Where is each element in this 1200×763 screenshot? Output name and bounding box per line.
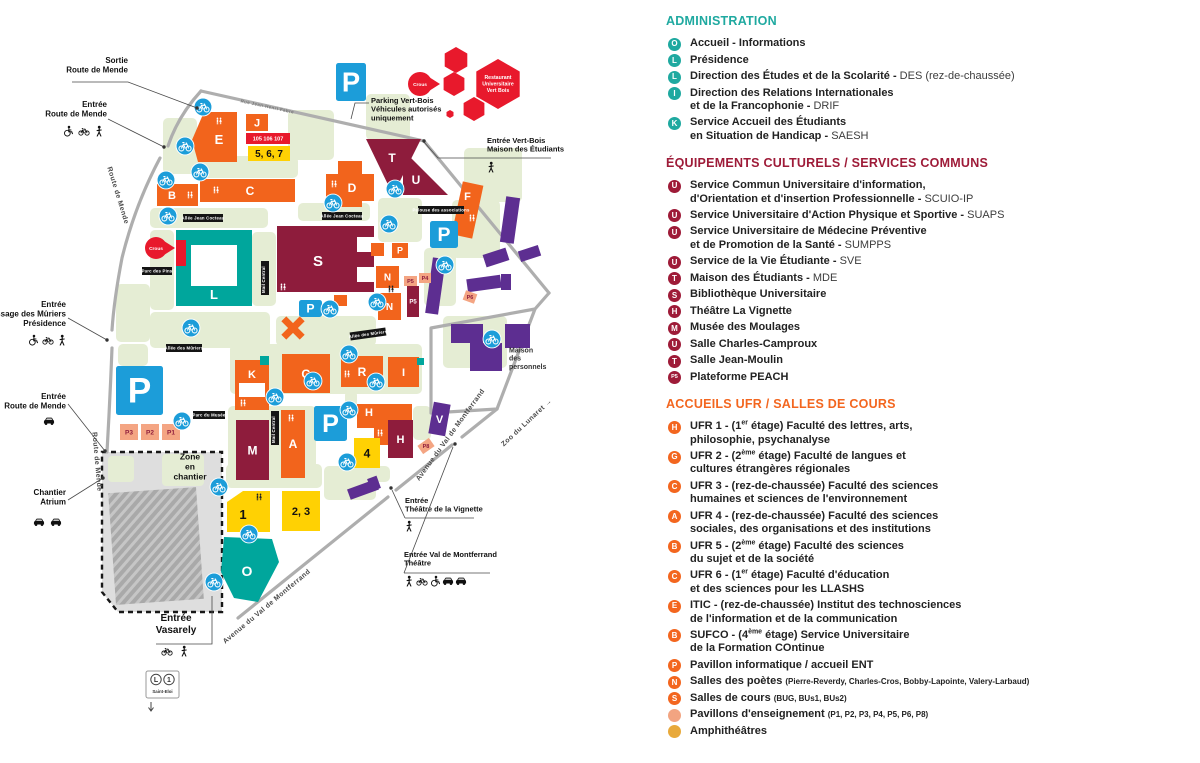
parking-sign-letter: P (322, 410, 339, 438)
legend-item-text: Salles de cours (BUG, BUs1, BUs2) (690, 692, 847, 705)
legend-badge: M (668, 322, 681, 335)
crous-badge-label: Crous (413, 82, 427, 88)
building-s-bibliotheque-label: S (313, 253, 323, 270)
wheel-icon (431, 576, 439, 586)
lawn (288, 110, 334, 160)
tram-stop-name: Saint-Eloi (152, 689, 172, 694)
label-chantier-atrium: ChantierAtrium (34, 476, 105, 526)
entrance-dot (105, 338, 108, 341)
lawn (150, 312, 270, 348)
legend-item-administration-4: KService Accueil des Étudiants en Situat… (666, 116, 1196, 143)
bike-station-icon (205, 573, 223, 591)
label-entree-theatre-vignette-pointer (392, 490, 405, 518)
road-label: Zoo du Lunaret → (500, 398, 553, 448)
entrance-dot (389, 486, 392, 489)
pavillon-chip-p5-label: P5 (407, 279, 414, 285)
legend-item-ufr-8: PPavillon informatique / accueil ENT (666, 659, 1196, 673)
bike-station-icon (191, 163, 209, 181)
legend-item-text: Plateforme PEACH (690, 371, 788, 384)
building-d-label: D (348, 181, 357, 195)
legend-item-text: Pavillon informatique / accueil ENT (690, 659, 873, 672)
legend-badge: U (668, 226, 681, 239)
entrance-dot (453, 442, 456, 445)
parking-sign-letter: P (438, 224, 451, 246)
lawn (116, 284, 150, 342)
legend-badge: T (668, 355, 681, 368)
campus-map-page: EJ105 106 1075, 6, 7BCDTUFLSKGRIPNNP5MAH… (0, 0, 1200, 763)
legend-item-ufr-12: Amphithéâtres (666, 725, 1196, 739)
label-sortie-route-de-mende-text: SortieRoute de Mende (66, 56, 128, 74)
pavillon-chip-p6-label: P6 (467, 295, 474, 301)
parking-sign-letter: P (306, 302, 314, 316)
bike-station-icon (176, 137, 194, 155)
bike-icon (417, 579, 427, 586)
building-m-label: M (248, 443, 258, 457)
building-r-label: R (358, 365, 367, 379)
legend-badge: S (668, 289, 681, 302)
bike-station-icon (368, 293, 386, 311)
legend-item-text: Service de la Vie Étudiante - SVE (690, 255, 862, 268)
legend-item-text: Salles des poètes (Pierre-Reverdy, Charl… (690, 675, 1029, 688)
legend-item-equipements-10: P5Plateforme PEACH (666, 371, 1196, 385)
legend-item-text: Présidence (690, 54, 749, 67)
legend-badge: P5 (668, 371, 681, 384)
legend-item-equipements-4: TMaison des Étudiants - MDE (666, 272, 1196, 286)
lawn (118, 344, 148, 366)
building-purple (518, 245, 541, 262)
label-entree-route-de-mende-ouest: EntréeRoute de Mende (4, 392, 106, 452)
campus-map: EJ105 106 1075, 6, 7BCDTUFLSKGRIPNNP5MAH… (0, 0, 660, 763)
legend-badge: S (668, 692, 681, 705)
car-icon (443, 578, 453, 585)
legend-badge: U (668, 338, 681, 351)
street-chip: Allée Jean Cocteau (320, 212, 363, 220)
legend-badge: G (668, 451, 681, 464)
legend-item-text: Musée des Moulages (690, 321, 800, 334)
pavillon-chip-p4-label: P4 (422, 276, 430, 282)
legend-item-equipements-2: UService Universitaire de Médecine Préve… (666, 225, 1196, 252)
bike-station-icon (173, 412, 191, 430)
lawn (413, 406, 431, 440)
label-entree-theatre-vignette-text: EntréeThéâtre de la Vignette (405, 496, 483, 514)
legend-item-text: UFR 5 - (2ème étage) Faculté des science… (690, 540, 904, 567)
wheel-icon (29, 335, 37, 345)
maison-personnels-building (505, 324, 530, 348)
tram-stop-saint-eloi: L1Saint-Eloi (146, 671, 179, 711)
legend-item-text: Salle Jean-Moulin (690, 354, 783, 367)
tram-line-number: 1 (167, 677, 171, 684)
building-t-label: T (388, 151, 396, 165)
building-2-3-label: 2, 3 (292, 506, 310, 518)
bike-station-icon (483, 330, 501, 348)
building-b-label: B (168, 190, 176, 202)
building-j-label: J (254, 117, 260, 129)
bike-station-icon (367, 373, 385, 391)
legend-badge: H (668, 421, 681, 434)
legend-item-administration-0: OAccueil - Informations (666, 37, 1196, 51)
building-n2-label: N (386, 302, 393, 313)
road-label: Rue Jean-Henri Fabre (240, 98, 294, 114)
entrance-dot (162, 145, 165, 148)
building-h-maroon-label: H (397, 434, 405, 446)
restaurant-hex (445, 47, 468, 73)
label-entree-vert-bois-text: Entrée Vert-BoisMaison des Étudiants (487, 136, 564, 154)
walk-icon (182, 646, 186, 656)
legend-item-administration-3: IDirection des Relations Internationales… (666, 87, 1196, 114)
bike-station-icon (159, 207, 177, 225)
legend-badge: U (668, 209, 681, 222)
pavillon-chip-p1-label: P1 (167, 429, 175, 436)
legend-item-text: ITIC - (rez-de-chaussée) Institut des te… (690, 599, 961, 626)
street-chip: Pelouse des associations (412, 206, 470, 214)
building-i-teal (417, 358, 424, 365)
legend-section-title-equipements: ÉQUIPEMENTS CULTURELS / SERVICES COMMUNS (666, 156, 1196, 170)
pavillon-chip-p2-label: P2 (146, 429, 154, 436)
legend-item-text: Bibliothèque Universitaire (690, 288, 826, 301)
legend-badge: E (668, 600, 681, 613)
street-chip-label: Allée des Mûriers (165, 346, 204, 351)
walk-icon (407, 521, 411, 531)
pavillon-chip-p3-label: P3 (125, 429, 133, 436)
street-chip-label: Parc des Pins (142, 269, 173, 274)
legend-badge: C (668, 570, 681, 583)
label-maison-des-personnels: Maisondespersonnels (509, 347, 546, 371)
label-entree-route-de-mende-ouest-pointer (68, 404, 105, 451)
label-entree-theatre-vignette: EntréeThéâtre de la Vignette (389, 486, 483, 531)
building-purple (501, 274, 511, 290)
legend-item-equipements-0: UService Commun Universitaire d'informat… (666, 179, 1196, 206)
legend-item-text: Amphithéâtres (690, 725, 767, 738)
legend-item-equipements-5: SBibliothèque Universitaire (666, 288, 1196, 302)
street-chip-label: Mail Central (261, 266, 266, 293)
legend-item-text: UFR 6 - (1er étage) Faculté d'éducation … (690, 569, 889, 596)
label-entree-val-de-montferrand-text: Entrée Val de MontferrandThéâtre (404, 550, 497, 568)
building-p-informatique-label: P (397, 246, 403, 256)
building-s-bibliotheque (277, 226, 374, 292)
bike-station-icon (304, 372, 322, 390)
street-chip: Parc des Pins (142, 267, 173, 275)
bike-station-icon (266, 388, 284, 406)
label-entree-vasarely-text: EntréeVasarely (156, 613, 197, 636)
building-l-red-wing (176, 240, 186, 266)
walk-icon (60, 335, 64, 345)
label-entree-route-de-mende-nord-text: EntréeRoute de Mende (45, 100, 107, 118)
label-parking-vert-bois-text: Parking Vert-BoisVéhicules autorisésuniq… (371, 96, 441, 123)
legend-item-text: Pavillons d'enseignement (P1, P2, P3, P4… (690, 708, 928, 721)
bike-station-icon (240, 525, 258, 543)
restaurant-vert-bois-label: Vert Bois (487, 88, 510, 94)
legend-item-equipements-3: UService de la Vie Étudiante - SVE (666, 255, 1196, 269)
label-entree-route-de-mende-ouest-text: EntréeRoute de Mende (4, 392, 66, 410)
legend-item-text: UFR 2 - (2ème étage) Faculté de langues … (690, 450, 906, 477)
legend-badge: P (668, 659, 681, 672)
car-icon (456, 578, 466, 585)
legend-section-title-administration: ADMINISTRATION (666, 14, 1196, 28)
legend-item-equipements-9: TSalle Jean-Moulin (666, 354, 1196, 368)
building-k-label: K (248, 369, 256, 381)
building-105-106-107-label: 105 106 107 (253, 136, 284, 142)
legend-item-text: Direction des Relations Internationales … (690, 87, 894, 114)
legend-item-ufr-3: AUFR 4 - (rez-de-chaussée) Faculté des s… (666, 510, 1196, 537)
legend-badge: O (668, 38, 681, 51)
legend-badge: L (668, 54, 681, 67)
legend-badge: B (668, 540, 681, 553)
maison-personnels-building (470, 343, 502, 371)
legend-item-text: Service Universitaire de Médecine Préven… (690, 225, 927, 252)
bike-station-icon (338, 453, 356, 471)
pavillon-chip-p8-label: P8 (423, 444, 430, 450)
building-n-annex (371, 243, 384, 256)
legend-item-text: UFR 4 - (rez-de-chaussée) Faculté des sc… (690, 510, 938, 537)
entrance-dot (422, 139, 425, 142)
legend-item-text: Théâtre La Vignette (690, 305, 792, 318)
crous-badge-label: Crous (149, 246, 163, 252)
building-p5-peach-label: P5 (409, 300, 417, 306)
bike-station-icon (324, 194, 342, 212)
legend-badge: A (668, 510, 681, 523)
building-c-label: C (246, 184, 255, 198)
walk-icon (97, 126, 101, 136)
building-a-label: A (289, 437, 298, 451)
restaurant-hex (444, 72, 465, 96)
label-entree-passage-des-muriers-text: EntréePassage des MûriersPrésidence (0, 300, 67, 328)
building-u (403, 150, 448, 195)
campus-boundary (107, 348, 112, 452)
bike-station-icon (436, 256, 454, 274)
building-n1-label: N (384, 273, 391, 284)
building-5-6-7-label: 5, 6, 7 (255, 149, 283, 160)
street-chip-label: Parc du Musée (193, 413, 226, 418)
legend-item-administration-2: LDirection des Études et de la Scolarité… (666, 70, 1196, 84)
street-chip: Allée des Mûriers (165, 344, 204, 352)
road-label: Route de Mende (105, 166, 129, 225)
bike-station-icon (340, 401, 358, 419)
restaurant-vert-bois-label: Restaurant (484, 75, 511, 81)
restaurant-hex (447, 110, 454, 118)
building-s-notch (357, 267, 374, 282)
building-purple (466, 275, 501, 293)
legend-item-text: UFR 1 - (1er étage) Faculté des lettres,… (690, 420, 912, 447)
building-k-courtyard (239, 383, 265, 397)
bike-station-icon (340, 345, 358, 363)
street-chip: Mail Central (271, 411, 279, 445)
legend-badge: I (668, 87, 681, 100)
legend-section-title-ufr: ACCUEILS UFR / SALLES DE COURS (666, 397, 1196, 411)
legend-badge (668, 709, 681, 722)
crous-badge: Crous (408, 72, 440, 96)
legend: ADMINISTRATIONOAccueil - InformationsLPr… (666, 0, 1196, 741)
label-maison-des-personnels-text: Maisondespersonnels (509, 347, 546, 371)
building-f-label: F (464, 191, 471, 203)
building-4-label: 4 (364, 446, 371, 460)
legend-item-ufr-1: GUFR 2 - (2ème étage) Faculté de langues… (666, 450, 1196, 477)
street-chip: Mail Central (261, 261, 269, 295)
parking-route-de-mende-letter: P (128, 371, 152, 410)
parking-vert-bois-letter: P (342, 66, 360, 97)
street-chip-label: Allée Jean Cocteau (181, 216, 224, 221)
legend-badge: K (668, 117, 681, 130)
bike-station-icon (386, 180, 404, 198)
legend-badge: B (668, 629, 681, 642)
legend-item-text: UFR 3 - (rez-de-chaussée) Faculté des sc… (690, 480, 938, 507)
street-chip: Parc du Musée (193, 411, 226, 419)
tram-line-letter: L (154, 677, 159, 684)
lawn (108, 456, 134, 482)
legend-item-administration-1: LPrésidence (666, 54, 1196, 68)
bike-station-icon (380, 215, 398, 233)
restaurant-hex (464, 97, 485, 121)
legend-badge: T (668, 272, 681, 285)
legend-item-ufr-2: CUFR 3 - (rez-de-chaussée) Faculté des s… (666, 480, 1196, 507)
legend-item-text: Accueil - Informations (690, 37, 806, 50)
entrance-dot (195, 106, 198, 109)
bike-station-icon (157, 171, 175, 189)
wheel-icon (64, 126, 72, 136)
legend-badge: U (668, 180, 681, 193)
legend-badge: U (668, 256, 681, 269)
bike-icon (162, 649, 172, 656)
entrance-dot (103, 449, 106, 452)
building-h-orange-label: H (365, 407, 373, 419)
building-u-label: U (412, 173, 421, 187)
road-label: Route de Mende (90, 432, 102, 492)
legend-item-text: SUFCO - (4ème étage) Service Universitai… (690, 629, 909, 656)
legend-item-text: Service Commun Universitaire d'informati… (690, 179, 973, 206)
legend-item-equipements-8: USalle Charles-Camproux (666, 338, 1196, 352)
legend-badge: H (668, 305, 681, 318)
bike-icon (79, 129, 89, 136)
walk-icon (407, 576, 411, 586)
legend-badge: N (668, 676, 681, 689)
bike-station-icon (182, 319, 200, 337)
bike-station-icon (210, 478, 228, 496)
label-chantier-atrium-text: ChantierAtrium (34, 488, 66, 506)
building-o-label: O (242, 563, 253, 579)
building-l-label: L (210, 287, 218, 302)
legend-badge (668, 725, 681, 738)
legend-item-text: Salle Charles-Camproux (690, 338, 817, 351)
street-chip-label: Pelouse des associations (412, 208, 470, 213)
legend-item-ufr-0: HUFR 1 - (1er étage) Faculté des lettres… (666, 420, 1196, 447)
maison-personnels-building (451, 324, 483, 343)
legend-item-ufr-5: CUFR 6 - (1er étage) Faculté d'éducation… (666, 569, 1196, 596)
building-purple (500, 196, 520, 244)
legend-item-ufr-4: BUFR 5 - (2ème étage) Faculté des scienc… (666, 540, 1196, 567)
bike-icon (43, 338, 53, 345)
building-i-label: I (402, 367, 405, 379)
bike-station-icon (321, 300, 339, 318)
legend-item-equipements-6: HThéâtre La Vignette (666, 305, 1196, 319)
legend-item-ufr-11: Pavillons d'enseignement (P1, P2, P3, P4… (666, 708, 1196, 722)
label-entree-val-de-montferrand: Entrée Val de MontferrandThéâtre (404, 442, 497, 586)
car-icon (34, 519, 44, 526)
legend-item-ufr-6: EITIC - (rez-de-chaussée) Institut des t… (666, 599, 1196, 626)
legend-badge: C (668, 480, 681, 493)
label-entree-passage-des-muriers-pointer (68, 318, 107, 340)
street-chip: Allée Jean Cocteau (181, 214, 224, 222)
label-entree-passage-des-muriers: EntréePassage des MûriersPrésidence (0, 300, 109, 345)
legend-item-text: Service Accueil des Étudiants en Situati… (690, 116, 868, 143)
legend-item-ufr-10: SSalles de cours (BUG, BUs1, BUs2) (666, 692, 1196, 706)
restaurant-vert-bois-label: Universitaire (482, 81, 514, 87)
building-e-label: E (215, 132, 224, 147)
street-chip-label: Mail Central (271, 416, 276, 443)
street-chip-label: Allée Jean Cocteau (320, 214, 363, 219)
campus-map-svg: EJ105 106 1075, 6, 7BCDTUFLSKGRIPNNP5MAH… (0, 0, 660, 763)
building-1-label: 1 (239, 507, 246, 522)
entrance-dot (101, 476, 104, 479)
car-icon (51, 519, 61, 526)
legend-item-text: Direction des Études et de la Scolarité … (690, 70, 1015, 83)
legend-item-ufr-7: BSUFCO - (4ème étage) Service Universita… (666, 629, 1196, 656)
label-entree-route-de-mende-nord: EntréeRoute de Mende (45, 100, 165, 149)
label-entree-route-de-mende-nord-pointer (108, 119, 164, 147)
legend-item-equipements-7: MMusée des Moulages (666, 321, 1196, 335)
legend-badge: L (668, 71, 681, 84)
legend-item-ufr-9: NSalles des poètes (Pierre-Reverdy, Char… (666, 675, 1196, 689)
building-k-teal (260, 356, 269, 365)
building-v-label: V (436, 414, 444, 426)
legend-item-text: Maison des Étudiants - MDE (690, 272, 837, 285)
legend-item-text: Service Universitaire d'Action Physique … (690, 209, 1004, 222)
legend-item-equipements-1: UService Universitaire d'Action Physique… (666, 209, 1196, 223)
building-l-courtyard (191, 245, 237, 286)
car-icon (44, 418, 54, 425)
tram-direction-arrow (149, 702, 154, 711)
construction-building (108, 487, 204, 605)
